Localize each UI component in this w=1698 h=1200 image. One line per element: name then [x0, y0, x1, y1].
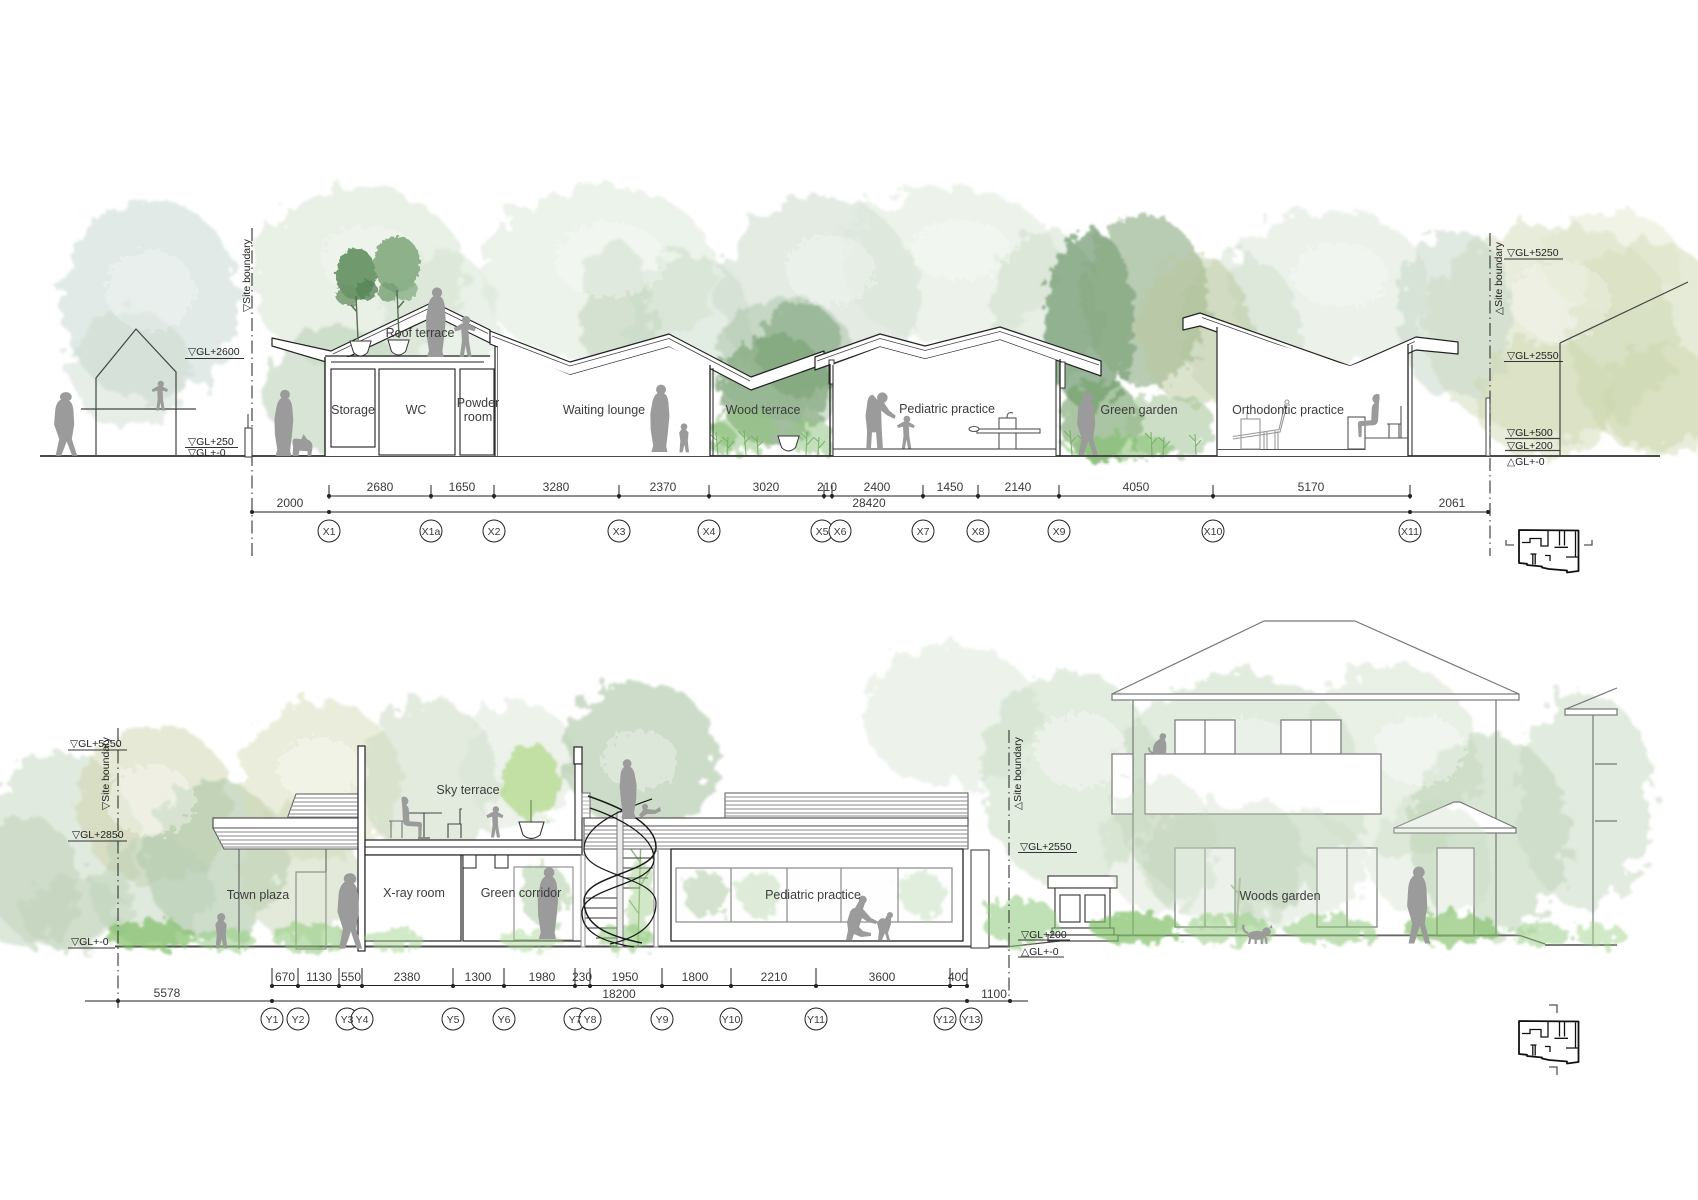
svg-text:670: 670	[275, 970, 295, 984]
svg-text:2000: 2000	[277, 496, 304, 510]
svg-text:WC: WC	[406, 403, 427, 417]
svg-text:▽GL+200: ▽GL+200	[1507, 440, 1553, 452]
svg-text:Y3: Y3	[341, 1014, 354, 1026]
svg-text:Y11: Y11	[807, 1014, 825, 1026]
svg-text:▽GL+-0: ▽GL+-0	[188, 447, 226, 459]
svg-text:210: 210	[817, 480, 837, 494]
svg-text:1300: 1300	[465, 970, 492, 984]
svg-text:4050: 4050	[1123, 480, 1150, 494]
svg-text:X6: X6	[834, 526, 847, 538]
svg-text:3020: 3020	[753, 480, 780, 494]
svg-text:5578: 5578	[154, 986, 181, 1000]
svg-text:2400: 2400	[864, 480, 891, 494]
svg-text:Orthodontic practice: Orthodontic practice	[1232, 403, 1344, 417]
svg-text:Green garden: Green garden	[1100, 403, 1177, 417]
svg-text:3600: 3600	[869, 970, 896, 984]
svg-text:Green corridor: Green corridor	[481, 886, 562, 900]
svg-text:1800: 1800	[682, 970, 709, 984]
svg-text:▽GL+200: ▽GL+200	[1021, 929, 1067, 941]
svg-text:Y4: Y4	[356, 1014, 369, 1026]
svg-text:2061: 2061	[1439, 496, 1466, 510]
svg-text:2370: 2370	[650, 480, 677, 494]
svg-text:Y2: Y2	[292, 1014, 305, 1026]
svg-text:Storage: Storage	[331, 403, 375, 417]
svg-text:Wood terrace: Wood terrace	[726, 403, 801, 417]
svg-text:Pediatric practice: Pediatric practice	[899, 402, 995, 416]
svg-text:X2: X2	[488, 526, 501, 538]
svg-text:Y9: Y9	[656, 1014, 669, 1026]
svg-text:Y12: Y12	[936, 1014, 955, 1026]
svg-text:Pediatric practice: Pediatric practice	[765, 888, 861, 902]
svg-text:room: room	[464, 410, 492, 424]
svg-text:Y10: Y10	[722, 1014, 741, 1026]
svg-text:Town plaza: Town plaza	[227, 888, 290, 902]
svg-text:2140: 2140	[1005, 480, 1032, 494]
svg-text:Y7: Y7	[569, 1014, 582, 1026]
svg-text:△GL+-0: △GL+-0	[1507, 456, 1545, 468]
svg-text:5170: 5170	[1298, 480, 1325, 494]
svg-text:Waiting lounge: Waiting lounge	[563, 403, 645, 417]
svg-text:△GL+-0: △GL+-0	[1021, 946, 1059, 958]
svg-text:Roof terrace: Roof terrace	[386, 326, 455, 340]
svg-text:Y13: Y13	[962, 1014, 981, 1026]
svg-text:2210: 2210	[761, 970, 788, 984]
svg-text:X5: X5	[816, 526, 829, 538]
svg-text:▽GL+2600: ▽GL+2600	[188, 346, 240, 358]
svg-text:X1a: X1a	[422, 526, 441, 538]
svg-text:230: 230	[572, 970, 592, 984]
svg-text:△Site boundary: △Site boundary	[1493, 241, 1505, 315]
svg-text:1450: 1450	[937, 480, 964, 494]
svg-text:▽GL+2550: ▽GL+2550	[1020, 841, 1072, 853]
svg-text:Y6: Y6	[498, 1014, 511, 1026]
svg-text:▽GL+2550: ▽GL+2550	[1507, 350, 1559, 362]
svg-text:Powder: Powder	[457, 396, 499, 410]
svg-text:1650: 1650	[449, 480, 476, 494]
svg-text:550: 550	[341, 970, 361, 984]
svg-text:Y8: Y8	[584, 1014, 597, 1026]
svg-text:2380: 2380	[394, 970, 421, 984]
svg-text:X11: X11	[1401, 526, 1419, 538]
svg-text:400: 400	[948, 970, 968, 984]
svg-text:X4: X4	[703, 526, 716, 538]
svg-text:▽GL+-0: ▽GL+-0	[71, 936, 109, 948]
svg-text:X-ray room: X-ray room	[383, 886, 445, 900]
svg-text:X8: X8	[972, 526, 985, 538]
svg-text:28420: 28420	[852, 496, 886, 510]
svg-text:1980: 1980	[529, 970, 556, 984]
svg-text:18200: 18200	[602, 987, 636, 1001]
svg-text:3280: 3280	[543, 480, 570, 494]
svg-text:▽GL+500: ▽GL+500	[1507, 427, 1553, 439]
svg-text:Sky terrace: Sky terrace	[436, 783, 499, 797]
svg-text:X1: X1	[323, 526, 336, 538]
svg-text:▽Site boundary: ▽Site boundary	[241, 238, 253, 312]
svg-text:X7: X7	[917, 526, 930, 538]
svg-text:△Site boundary: △Site boundary	[1012, 736, 1024, 810]
svg-text:X9: X9	[1053, 526, 1066, 538]
svg-text:Y1: Y1	[266, 1014, 279, 1026]
svg-text:▽GL+2850: ▽GL+2850	[72, 829, 124, 841]
svg-text:X10: X10	[1204, 526, 1223, 538]
svg-text:1950: 1950	[612, 970, 639, 984]
svg-text:X3: X3	[613, 526, 626, 538]
svg-text:Woods garden: Woods garden	[1239, 889, 1320, 903]
svg-text:2680: 2680	[367, 480, 394, 494]
svg-text:Y5: Y5	[447, 1014, 460, 1026]
svg-text:▽GL+5250: ▽GL+5250	[1507, 247, 1559, 259]
svg-text:1130: 1130	[306, 970, 332, 984]
svg-text:▽GL+5250: ▽GL+5250	[70, 738, 122, 750]
svg-text:1100: 1100	[981, 987, 1007, 1001]
